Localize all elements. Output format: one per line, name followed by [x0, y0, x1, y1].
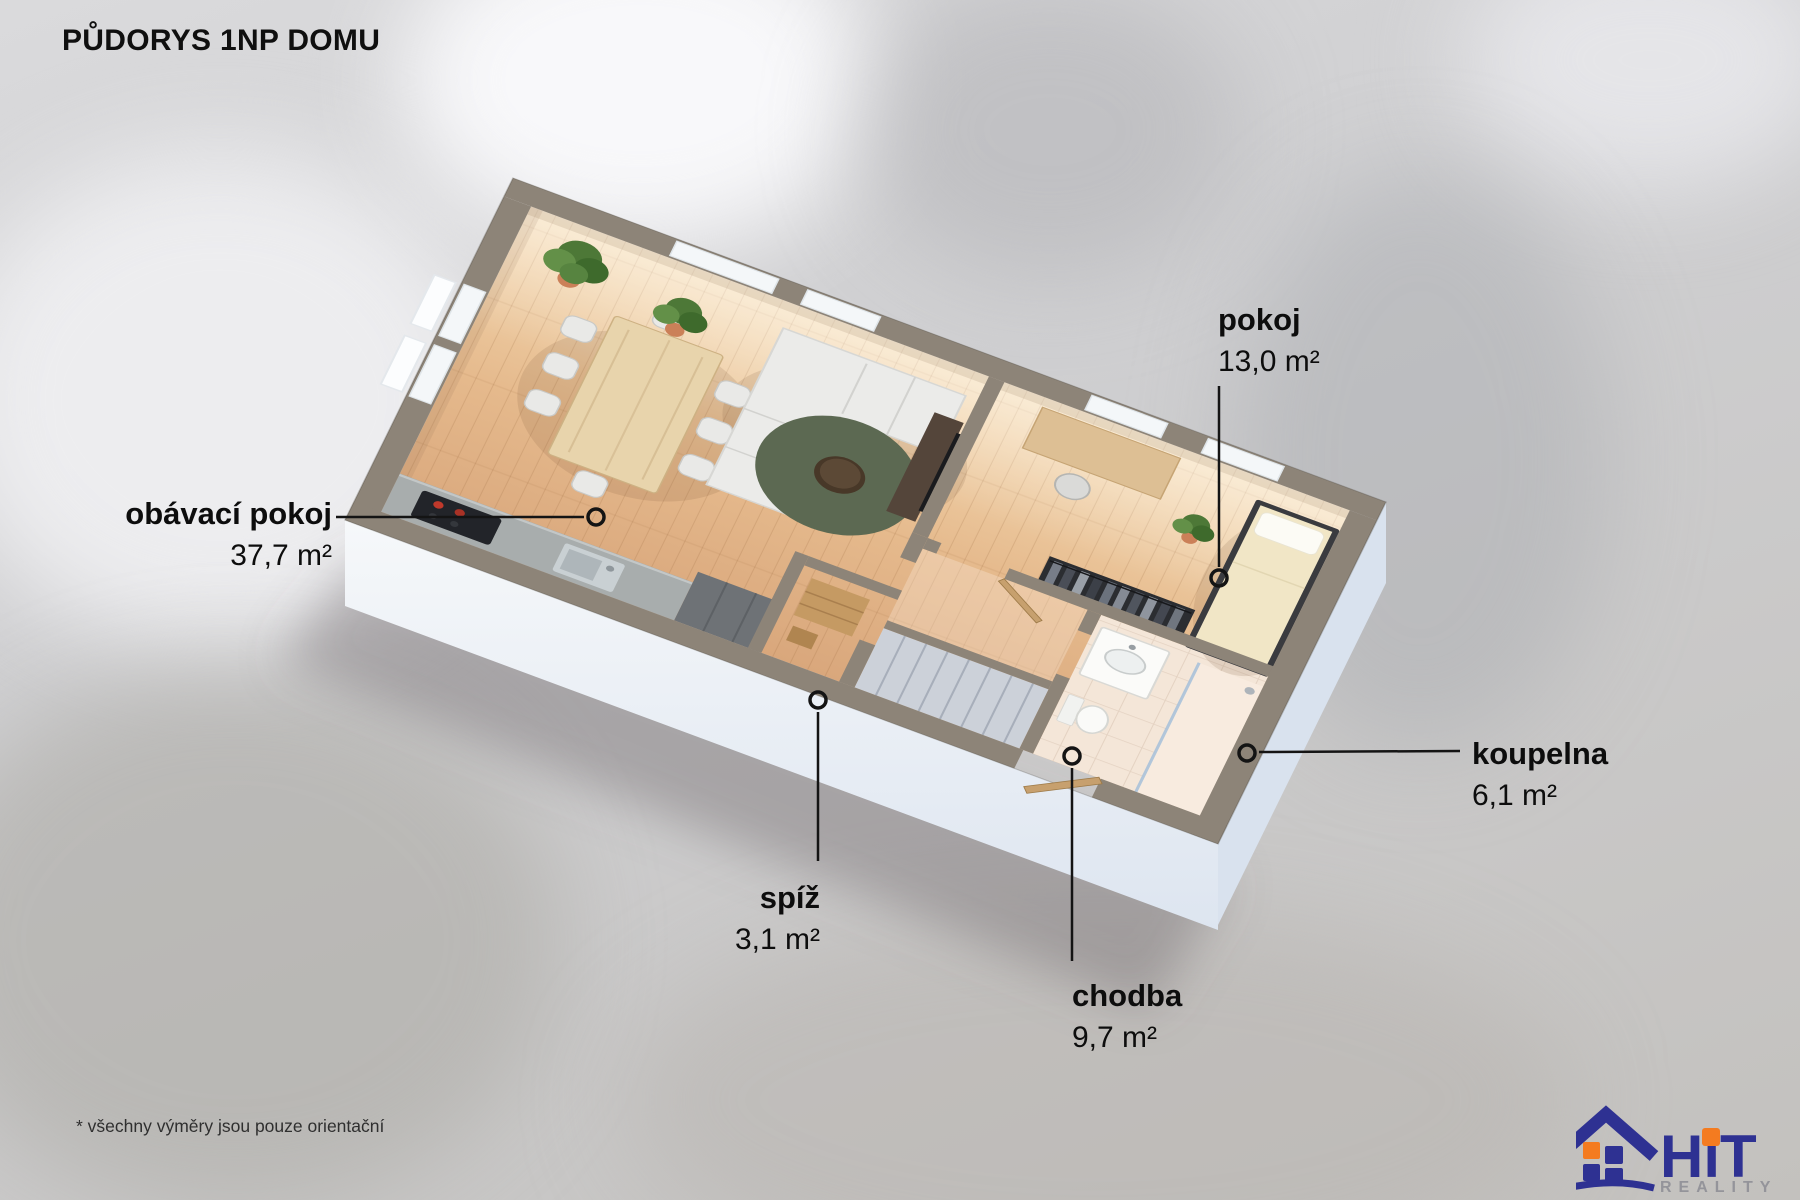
- room-name: koupelna: [1472, 737, 1608, 771]
- room-label-obyvaci-pokoj: obávací pokoj 37,7 m²: [92, 497, 332, 572]
- room-name: obávací pokoj: [92, 497, 332, 531]
- footnote: * všechny výměry jsou pouze orientační: [76, 1116, 384, 1137]
- page-title: PŮDORYS 1NP DOMU: [62, 24, 380, 58]
- room-area: 13,0 m²: [1218, 346, 1320, 378]
- room-name: pokoj: [1218, 303, 1320, 337]
- floorplan-render: [0, 0, 1800, 1200]
- logo-house-icon: [1576, 1114, 1654, 1188]
- floorplan-page: PŮDORYS 1NP DOMU obávací pokoj 37,7 m² p…: [0, 0, 1800, 1200]
- room-label-pokoj: pokoj 13,0 m²: [1218, 303, 1320, 378]
- hit-reality-logo: HiT REALITY: [1576, 1088, 1800, 1196]
- room-name: chodba: [1072, 979, 1182, 1013]
- room-area: 6,1 m²: [1472, 780, 1608, 812]
- room-label-koupelna: koupelna 6,1 m²: [1472, 737, 1608, 812]
- logo-tagline: REALITY: [1660, 1179, 1777, 1196]
- room-area: 37,7 m²: [92, 540, 332, 572]
- logo-i-dot: [1702, 1128, 1720, 1146]
- room-area: 9,7 m²: [1072, 1022, 1182, 1054]
- leader-line-koupelna: [1259, 751, 1460, 752]
- room-label-spiz: spíž 3,1 m²: [660, 881, 820, 956]
- room-label-chodba: chodba 9,7 m²: [1072, 979, 1182, 1054]
- room-area: 3,1 m²: [660, 924, 820, 956]
- room-name: spíž: [660, 881, 820, 915]
